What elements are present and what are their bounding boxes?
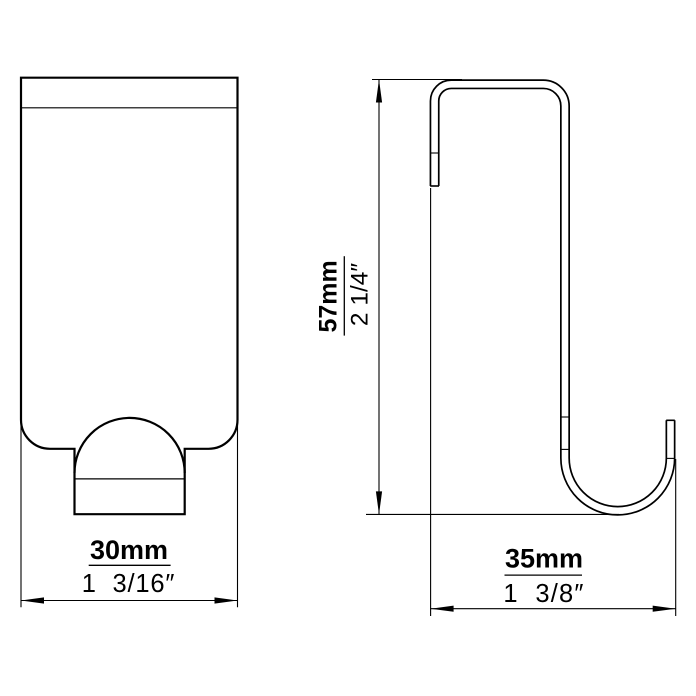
svg-text:2 1/4″: 2 1/4″ <box>346 263 373 326</box>
svg-text:30mm: 30mm <box>90 535 168 565</box>
svg-text:1 3/8″: 1 3/8″ <box>503 580 584 608</box>
svg-text:1 3/16″: 1 3/16″ <box>82 570 175 598</box>
svg-text:57mm: 57mm <box>314 260 342 332</box>
svg-text:35mm: 35mm <box>505 543 583 573</box>
